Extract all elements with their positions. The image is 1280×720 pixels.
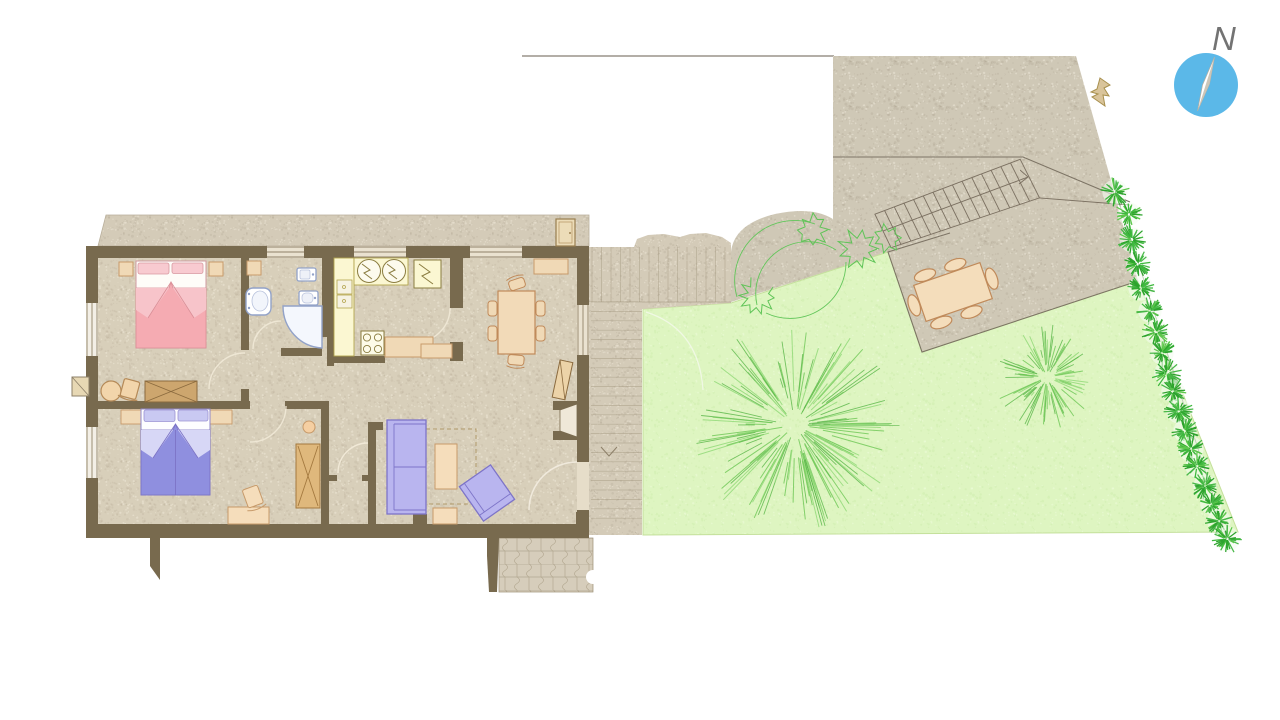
svg-text:N: N [1212,20,1236,57]
